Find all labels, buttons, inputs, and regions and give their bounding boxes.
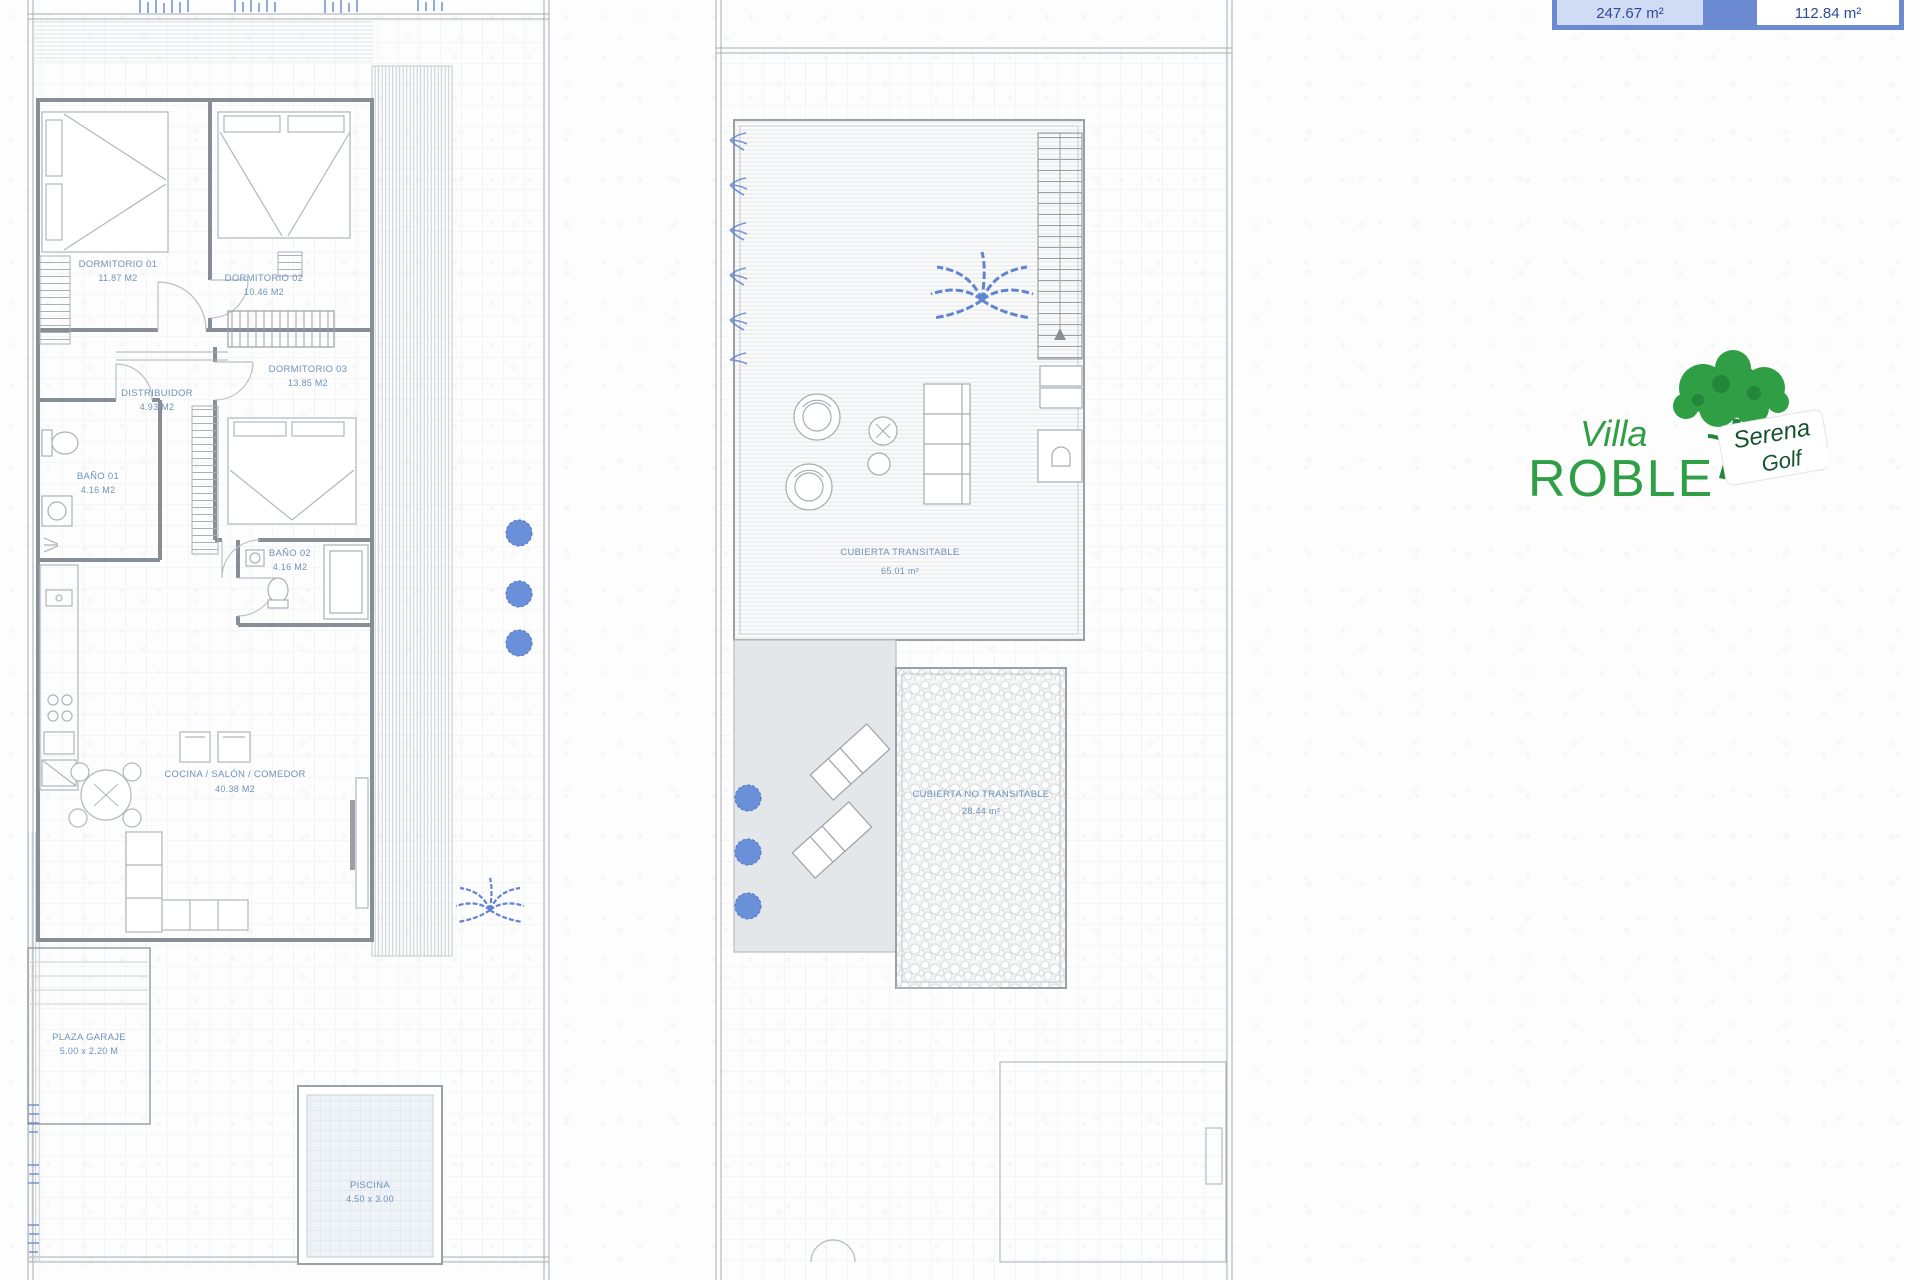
label-cubierta-no-transitable: CUBIERTA NO TRANSITABLE [912,789,1049,800]
lounge-chair-icon [786,464,832,510]
top-paving-band [33,20,373,62]
svg-text:4.16 M2: 4.16 M2 [81,485,116,495]
stairs-icon [1038,133,1082,359]
tree-icon [506,520,532,546]
built-area-cell: 112.84 m² [1757,0,1899,25]
garden-trees [506,520,532,656]
svg-text:4.93 M2: 4.93 M2 [140,402,175,412]
roof-non-walkable: CUBIERTA NO TRANSITABLE 28.44 m² [896,668,1066,988]
room-label-distribuidor: DISTRIBUIDOR [121,388,193,399]
toilet-icon [268,578,288,602]
logo-villa-text: Villa [1580,413,1647,454]
svg-text:13.85 M2: 13.85 M2 [288,378,328,388]
tree-icon [735,785,761,811]
svg-text:10.46 M2: 10.46 M2 [244,287,284,297]
roof-plan: CUBIERTA TRANSITABLE 65.01 m² [700,0,1240,1280]
plot-area-cell: 247.67 m² [1557,0,1703,25]
room-label-dormitorio-02: DORMITORIO 02 [225,273,304,284]
lounge-chair-icon [794,394,840,440]
room-label-piscina: PISCINA [350,1180,390,1191]
svg-text:65.01 m²: 65.01 m² [881,566,919,576]
room-label-bano-02: BAÑO 02 [269,548,311,559]
wardrobe-icon [40,256,70,344]
bed-icon-dorm3 [228,418,356,524]
room-label-dormitorio-03: DORMITORIO 03 [269,364,348,375]
tree-icon [735,893,761,919]
villa-roble-logo: Villa ROBLE Serena Golf [1528,338,1828,538]
shrub-icons-top [140,0,442,13]
toilet-icon [42,430,52,456]
room-label-plaza-garaje: PLAZA GARAJE [52,1032,126,1043]
table-divider [1707,0,1753,25]
tree-icon [506,630,532,656]
shelving-icon [192,406,218,554]
plan-sheet: PLAZA GARAJE 5.00 x 2.20 M PISCINA 4.50 … [0,0,1920,1280]
tree-icon [506,581,532,607]
sofa-icon [924,384,970,504]
ground-floor-plan: PLAZA GARAJE 5.00 x 2.20 M PISCINA 4.50 … [20,0,560,1280]
tree-icon [735,839,761,865]
area-summary-table: 247.67 m² 112.84 m² [1552,0,1904,30]
svg-text:5.00 x 2.20 M: 5.00 x 2.20 M [60,1046,118,1056]
svg-text:40.38 M2: 40.38 M2 [215,784,255,794]
room-label-bano-01: BAÑO 01 [77,471,119,482]
svg-text:28.44 m²: 28.44 m² [962,806,1000,816]
room-label-dormitorio-01: DORMITORIO 01 [79,259,158,270]
bed-icon-dorm2 [218,112,350,238]
roof-terrace-walkable: CUBIERTA TRANSITABLE 65.01 m² [734,120,1084,640]
label-cubierta-transitable: CUBIERTA TRANSITABLE [840,547,959,558]
shower-tray-icon [324,545,368,619]
room-label-cocina: COCINA / SALÓN / COMEDOR [164,769,305,780]
garden-hatch-strip [372,66,452,956]
svg-text:4.50 x 3.00: 4.50 x 3.00 [346,1194,394,1204]
pool: PISCINA 4.50 x 3.00 [298,1086,442,1264]
svg-text:11.87 M2: 11.87 M2 [98,273,137,283]
logo-roble-text: ROBLE [1528,450,1714,508]
garden-trees [735,785,761,919]
svg-text:4.16 M2: 4.16 M2 [273,562,308,572]
bed-icon-dorm1 [42,112,168,252]
